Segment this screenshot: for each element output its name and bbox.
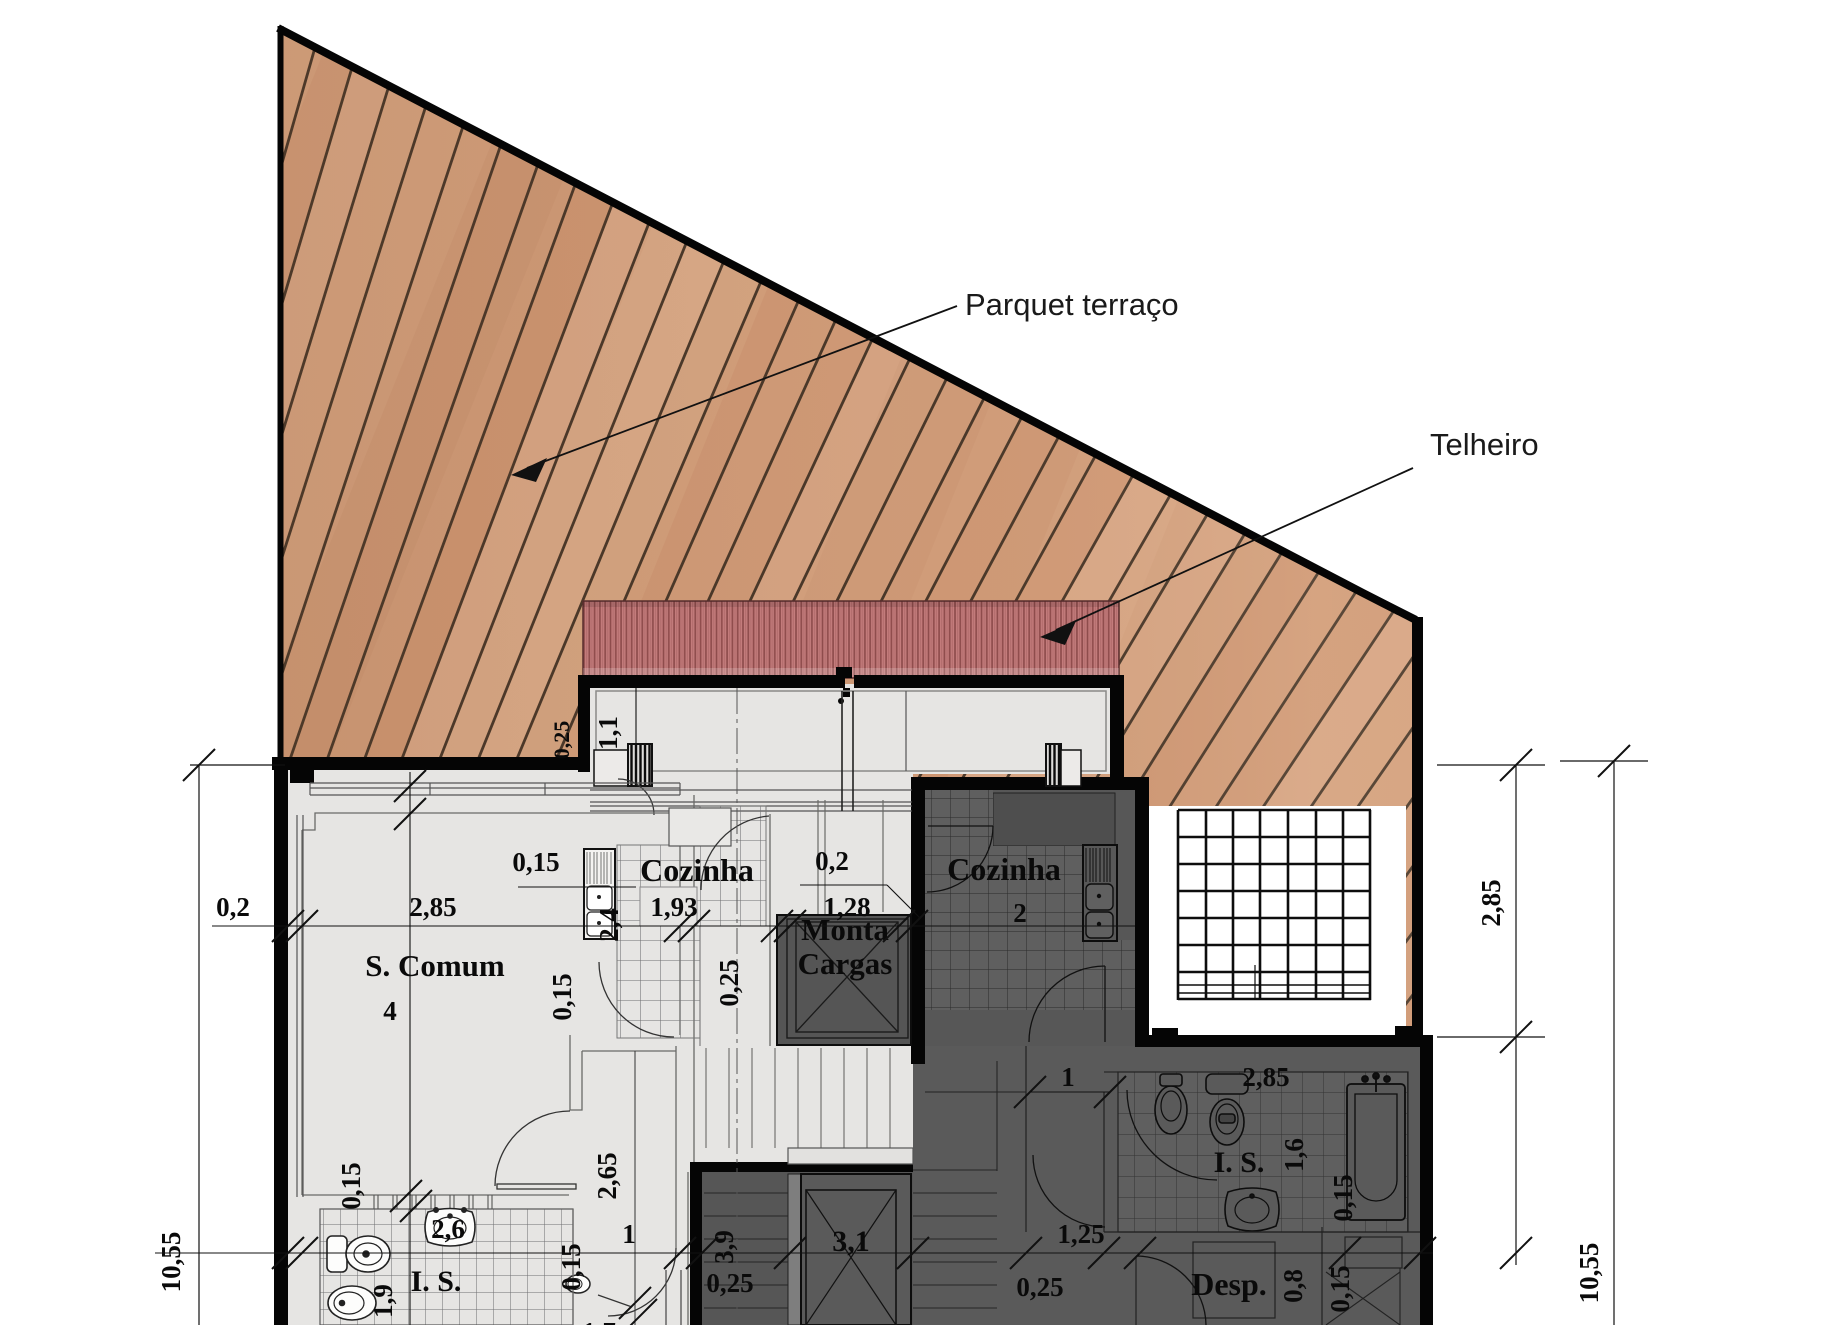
- svg-text:10,55: 10,55: [156, 1232, 186, 1293]
- svg-text:Cozinha: Cozinha: [947, 851, 1061, 887]
- svg-text:0,2: 0,2: [216, 892, 250, 922]
- svg-text:1,7: 1,7: [582, 1317, 616, 1325]
- svg-text:I. S.: I. S.: [411, 1265, 462, 1298]
- svg-text:0,15: 0,15: [556, 1243, 586, 1290]
- svg-text:Telheiro: Telheiro: [1430, 427, 1539, 462]
- svg-text:1,9: 1,9: [368, 1284, 398, 1318]
- svg-text:Desp.: Desp.: [1191, 1266, 1267, 1302]
- svg-text:0,25: 0,25: [549, 721, 574, 760]
- svg-text:Cargas: Cargas: [798, 946, 893, 981]
- svg-text:4: 4: [383, 996, 397, 1026]
- svg-text:2,85: 2,85: [409, 892, 456, 922]
- svg-text:0,15: 0,15: [1325, 1265, 1355, 1312]
- svg-text:2,85: 2,85: [1242, 1062, 1289, 1092]
- svg-text:2,65: 2,65: [592, 1152, 622, 1199]
- svg-text:S. Comum: S. Comum: [365, 948, 505, 983]
- svg-text:I. S.: I. S.: [1214, 1146, 1265, 1179]
- svg-text:1,93: 1,93: [650, 892, 697, 922]
- svg-text:Parquet terraço: Parquet terraço: [965, 287, 1179, 322]
- svg-text:Cozinha: Cozinha: [640, 852, 754, 888]
- svg-text:2,85: 2,85: [1476, 879, 1506, 926]
- svg-text:2,6: 2,6: [431, 1214, 465, 1244]
- svg-text:1,28: 1,28: [823, 892, 870, 922]
- svg-text:1,6: 1,6: [1279, 1138, 1309, 1172]
- svg-text:1,1: 1,1: [593, 716, 623, 750]
- svg-text:0,15: 0,15: [1328, 1174, 1358, 1221]
- svg-text:0,25: 0,25: [1016, 1272, 1063, 1302]
- svg-text:1,25: 1,25: [1057, 1219, 1104, 1249]
- svg-text:0,15: 0,15: [512, 847, 559, 877]
- svg-text:0,8: 0,8: [1278, 1269, 1308, 1303]
- svg-text:2,4: 2,4: [594, 908, 624, 942]
- svg-text:0,2: 0,2: [815, 846, 849, 876]
- svg-text:3,9: 3,9: [709, 1230, 739, 1264]
- svg-text:2: 2: [1013, 898, 1027, 928]
- svg-text:0,25: 0,25: [706, 1268, 753, 1298]
- svg-text:1: 1: [1061, 1062, 1075, 1092]
- svg-text:10,55: 10,55: [1574, 1243, 1604, 1304]
- svg-text:1: 1: [622, 1219, 636, 1249]
- svg-text:0,15: 0,15: [547, 973, 577, 1020]
- svg-text:0,15: 0,15: [336, 1162, 366, 1209]
- svg-text:0,25: 0,25: [714, 959, 744, 1006]
